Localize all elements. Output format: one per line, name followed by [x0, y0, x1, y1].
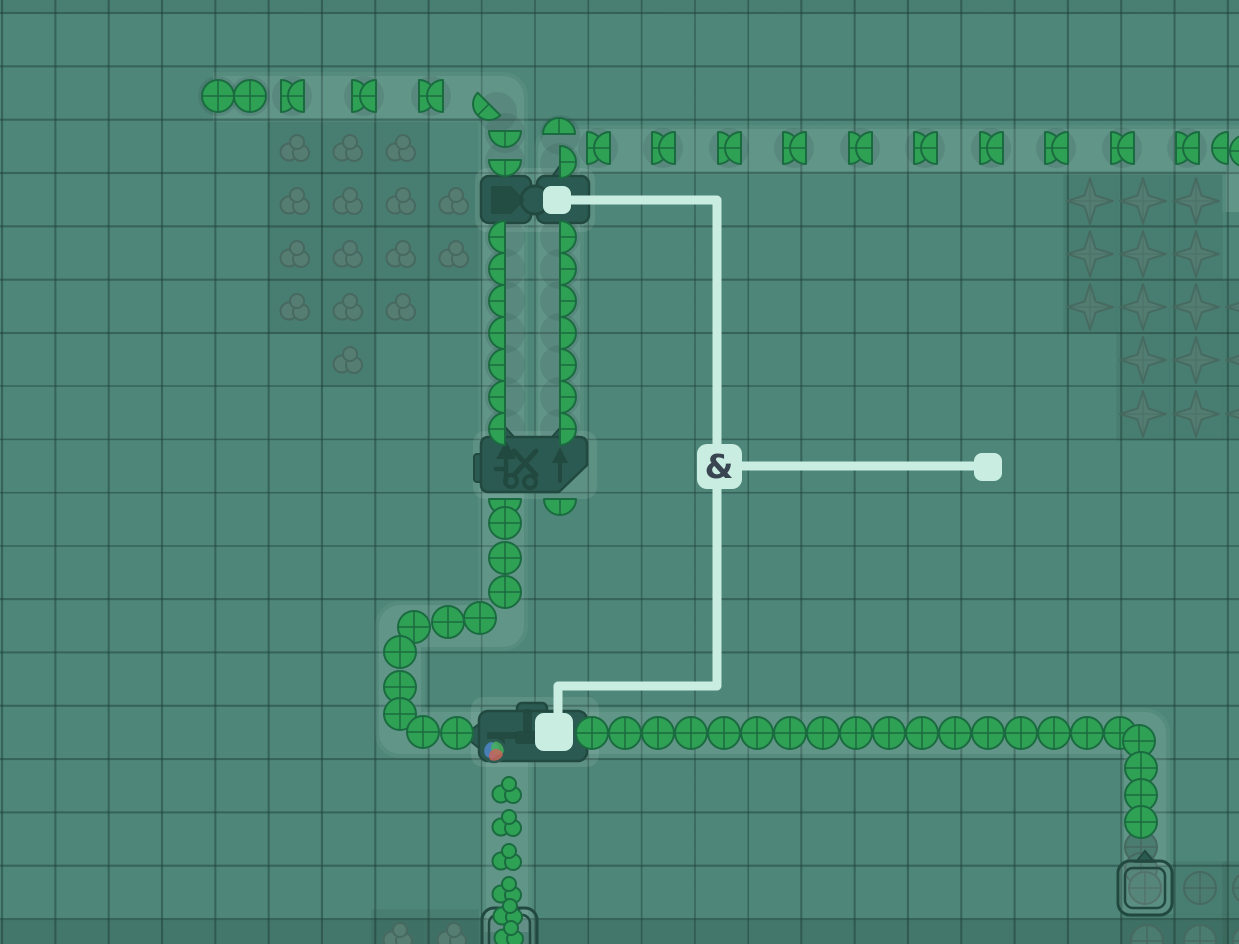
- belt-item-c: [972, 717, 1004, 749]
- belt-item-c: [873, 717, 905, 749]
- belt-item-c: [1071, 717, 1103, 749]
- belt-item-c: [1005, 717, 1037, 749]
- belt-item-c: [384, 636, 416, 668]
- belt-item-c: [202, 80, 234, 112]
- belt-item-c: [840, 717, 872, 749]
- belt-item-c: [234, 80, 266, 112]
- wire[interactable]: [558, 486, 717, 715]
- wire-pin[interactable]: [974, 453, 1002, 481]
- belt-item-c: [807, 717, 839, 749]
- belt-item-c: [441, 717, 473, 749]
- belt-item-c: [1125, 806, 1157, 838]
- wire[interactable]: [571, 200, 717, 446]
- belt-item-c: [1038, 717, 1070, 749]
- game-canvas[interactable]: [0, 0, 1239, 944]
- game-viewport[interactable]: &: [0, 0, 1239, 944]
- belt-item-c: [489, 576, 521, 608]
- wire-pin[interactable]: [535, 713, 573, 751]
- belt-item-c: [642, 717, 674, 749]
- belt-item-c: [576, 717, 608, 749]
- miner-machine[interactable]: [1118, 851, 1172, 915]
- belt-item-c: [774, 717, 806, 749]
- belt-item-c: [906, 717, 938, 749]
- belt-item-c: [489, 507, 521, 539]
- wire-pin[interactable]: [543, 186, 571, 214]
- belt-item-hl: [544, 499, 576, 515]
- belt-item-c: [432, 606, 464, 638]
- belt-item-c: [741, 717, 773, 749]
- resource-node-circle: [1184, 872, 1216, 904]
- belt-item-c: [675, 717, 707, 749]
- and-gate-label: &: [705, 450, 734, 483]
- belt-item-c: [464, 602, 496, 634]
- belt-item-c: [609, 717, 641, 749]
- belt-item-c: [489, 542, 521, 574]
- belt-item-c: [407, 716, 439, 748]
- belt-item-c: [939, 717, 971, 749]
- belt-item-orb: [483, 740, 505, 763]
- conveyor-belt: [586, 733, 1145, 866]
- belt-item-c: [708, 717, 740, 749]
- and-gate[interactable]: &: [697, 444, 742, 489]
